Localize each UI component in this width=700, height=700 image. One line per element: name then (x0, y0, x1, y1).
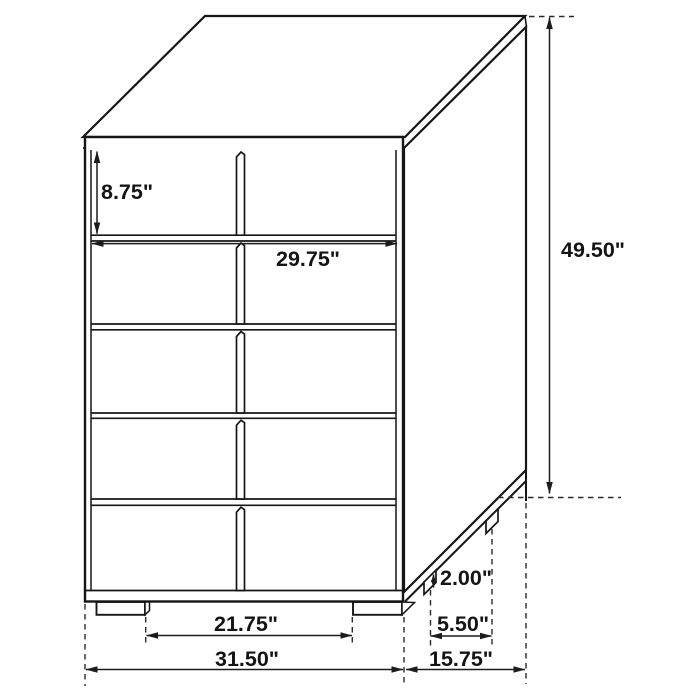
dimension-label-overall-width: 31.50" (215, 647, 279, 671)
drawing-canvas: 8.75" 29.75" 49.50" 2.00" 5.50" 15.75" 2… (0, 0, 700, 700)
front-right-leg-side (402, 602, 415, 615)
front-right-leg (353, 602, 402, 615)
front-left-leg-side (145, 602, 150, 615)
drawer-handle (237, 420, 245, 499)
dimension-label-drawer-height: 8.75" (101, 180, 153, 204)
dimension-label-side-leg-spacing: 5.50" (437, 612, 489, 636)
drawer-handles (237, 152, 245, 591)
drawer-handle (237, 152, 245, 235)
front-left-leg (97, 602, 146, 615)
drawer-handle (237, 507, 245, 590)
dimension-label-base-height: 2.00" (440, 566, 492, 590)
chest-dimension-drawing: 8.75" 29.75" 49.50" 2.00" 5.50" 15.75" 2… (0, 0, 700, 700)
drawer-handle (237, 332, 245, 414)
dimension-label-front-leg-spacing: 21.75" (214, 612, 278, 636)
dimension-label-overall-depth: 15.75" (429, 647, 493, 671)
dimension-label-drawer-width: 29.75" (276, 247, 340, 271)
chest-structure (83, 16, 527, 615)
drawer-handle (237, 243, 245, 324)
dimension-label-overall-height: 49.50" (561, 238, 625, 262)
